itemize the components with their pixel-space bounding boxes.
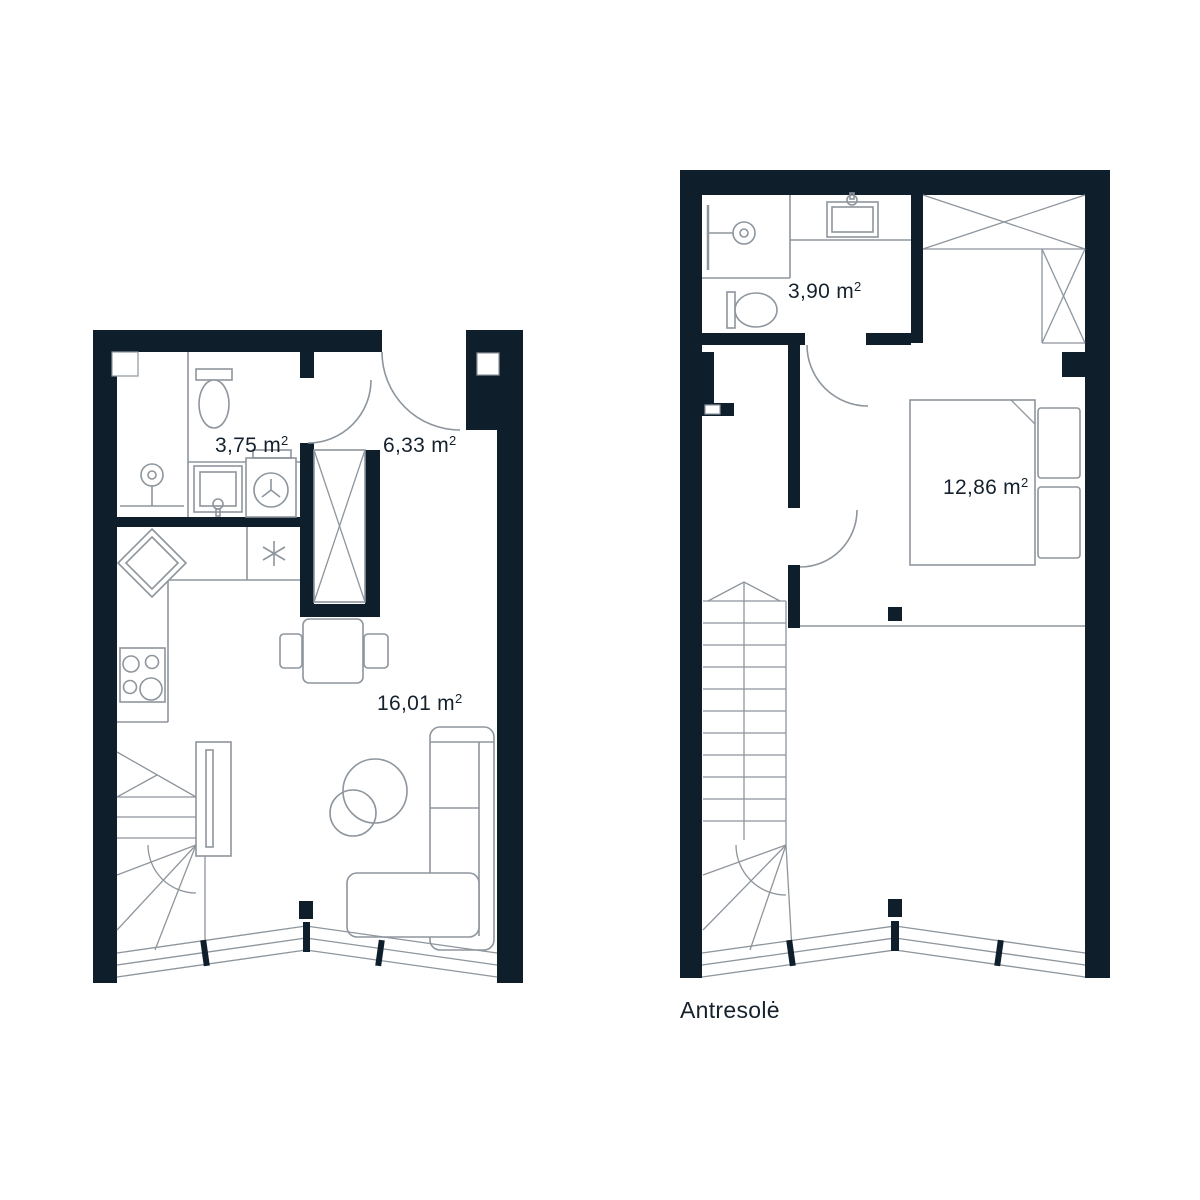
shaft-niche-icon — [112, 352, 138, 376]
bathroom-door-arc-icon — [308, 380, 371, 443]
area-label-ground-living-room: 16,01 m2 — [377, 691, 463, 715]
mezzanine-walls — [680, 170, 1110, 978]
ground-kitchen — [117, 527, 300, 722]
toilet-icon — [196, 369, 232, 428]
area-label-ground-bathroom: 3,75 m2 — [215, 433, 289, 457]
bedroom-door-arc-icon — [800, 510, 857, 567]
mezzanine-title: Antresolė — [680, 997, 780, 1023]
shower-icon — [120, 464, 184, 506]
floor-plan-page: 3,75 m2 6,33 m2 16,01 m2 — [0, 0, 1200, 1200]
floor-plans-drawing: 3,75 m2 6,33 m2 16,01 m2 — [0, 0, 1200, 1200]
ground-floor-plan: 3,75 m2 6,33 m2 16,01 m2 — [93, 330, 523, 983]
sink-icon — [827, 193, 878, 237]
wardrobe-icon — [314, 450, 365, 602]
mezzanine-floor-plan: 3,90 m2 12,86 m2 Antresolė — [680, 170, 1110, 1023]
bathroom-door-arc-icon — [807, 345, 868, 406]
shaft-niche-icon — [705, 405, 720, 414]
washing-machine-icon — [246, 450, 296, 517]
hob-icon — [120, 648, 165, 702]
glazing-post-icon — [299, 901, 313, 919]
window-glazing-mezzanine — [702, 899, 1085, 977]
glazing-post-icon — [891, 921, 899, 951]
kitchen-sink-icon — [118, 529, 186, 597]
entrance-door-arc-icon — [382, 352, 460, 430]
glazing-post-icon — [303, 922, 310, 952]
area-label-mezzanine-bedroom: 12,86 m2 — [943, 475, 1029, 499]
sink-icon — [194, 466, 242, 516]
coffee-tables-icon — [330, 759, 407, 836]
area-label-mezzanine-bathroom: 3,90 m2 — [788, 279, 862, 303]
stairs-mezzanine-icon — [703, 582, 792, 950]
dining-set-icon — [280, 619, 388, 683]
area-label-ground-hallway: 6,33 m2 — [383, 433, 457, 457]
sofa-icon — [347, 727, 494, 950]
stairs-ground-icon — [117, 752, 205, 950]
toilet-icon — [727, 292, 777, 328]
column-icon — [888, 607, 902, 621]
closet-icon — [923, 195, 1085, 343]
tv-unit-icon — [196, 742, 231, 856]
shower-icon — [708, 205, 755, 270]
asterisk-symbol-icon — [263, 541, 285, 566]
glazing-mullion-icon — [375, 940, 385, 967]
shaft-niche-icon — [477, 353, 499, 375]
glazing-post-icon — [888, 899, 902, 917]
mezzanine-bathroom — [702, 193, 911, 328]
